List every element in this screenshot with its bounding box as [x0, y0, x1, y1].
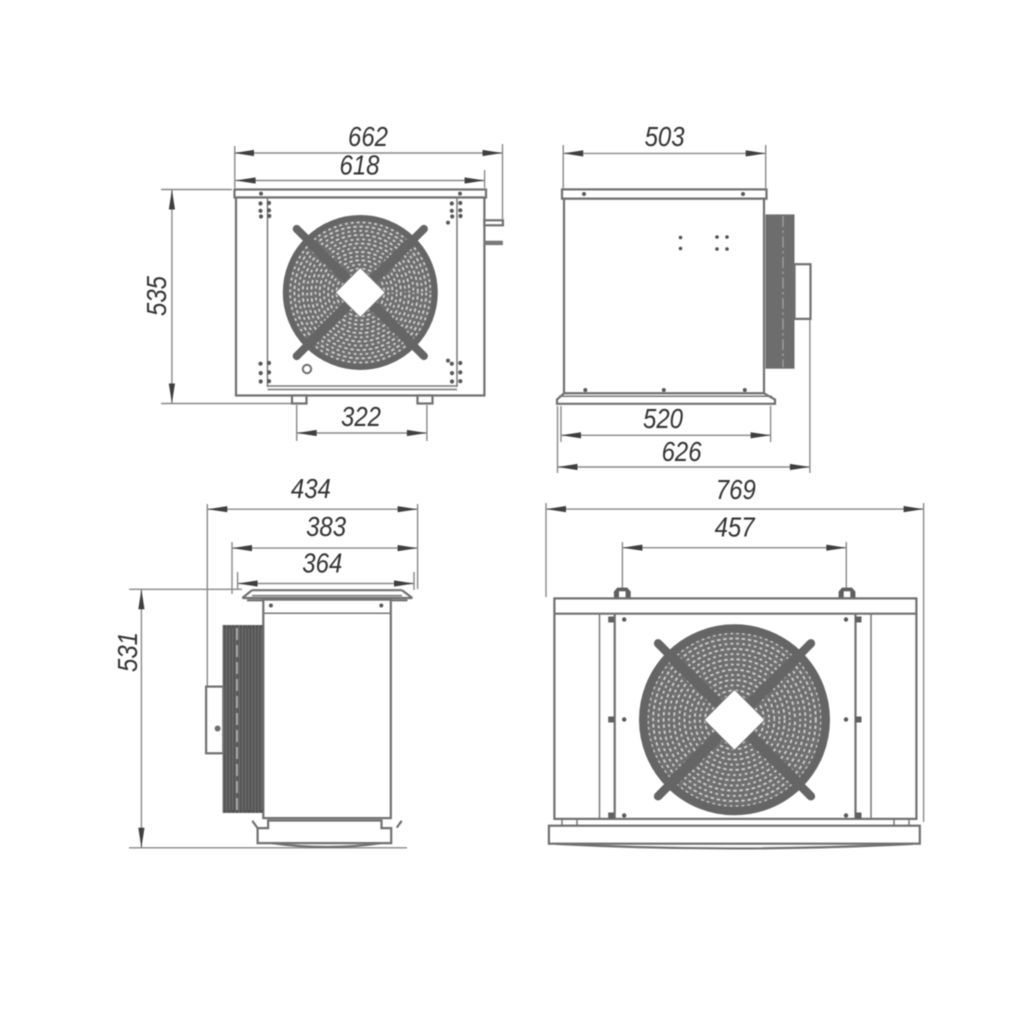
svg-text:503: 503	[645, 121, 685, 152]
svg-text:383: 383	[306, 511, 346, 542]
svg-text:662: 662	[348, 121, 388, 152]
svg-text:457: 457	[715, 512, 756, 543]
svg-text:520: 520	[643, 403, 683, 434]
svg-text:535: 535	[141, 276, 172, 316]
svg-text:626: 626	[662, 436, 702, 467]
svg-text:769: 769	[716, 474, 756, 505]
svg-text:618: 618	[340, 150, 380, 181]
svg-text:322: 322	[341, 401, 381, 432]
svg-text:364: 364	[302, 548, 342, 579]
svg-text:531: 531	[112, 632, 143, 672]
svg-text:434: 434	[291, 473, 331, 504]
